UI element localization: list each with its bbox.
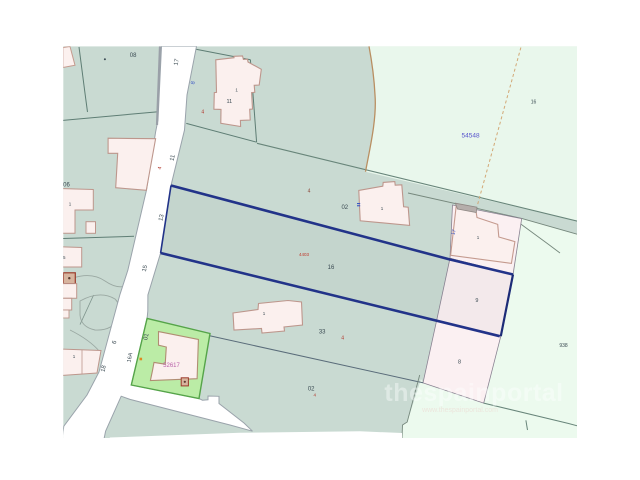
svg-text:www.thespainportal.com: www.thespainportal.com [421, 407, 498, 414]
svg-text:02: 02 [341, 205, 348, 211]
svg-text:11: 11 [227, 99, 233, 105]
svg-text:06: 06 [63, 183, 70, 189]
svg-text:938: 938 [559, 343, 568, 349]
svg-text:8: 8 [458, 359, 461, 365]
svg-text:05: 05 [60, 255, 66, 260]
svg-text:54548: 54548 [462, 133, 480, 140]
svg-text:02: 02 [308, 387, 315, 393]
svg-text:thespainportal: thespainportal [384, 379, 563, 407]
svg-text:9: 9 [475, 298, 478, 304]
svg-text:4: 4 [341, 335, 344, 341]
svg-text:33: 33 [319, 330, 326, 336]
svg-text:08: 08 [130, 53, 137, 59]
svg-text:16: 16 [531, 99, 537, 105]
svg-text:16: 16 [328, 265, 335, 271]
svg-text:4403: 4403 [299, 252, 310, 257]
svg-text:4: 4 [201, 109, 204, 115]
svg-text:4: 4 [308, 189, 311, 195]
svg-text:52617: 52617 [163, 363, 180, 369]
